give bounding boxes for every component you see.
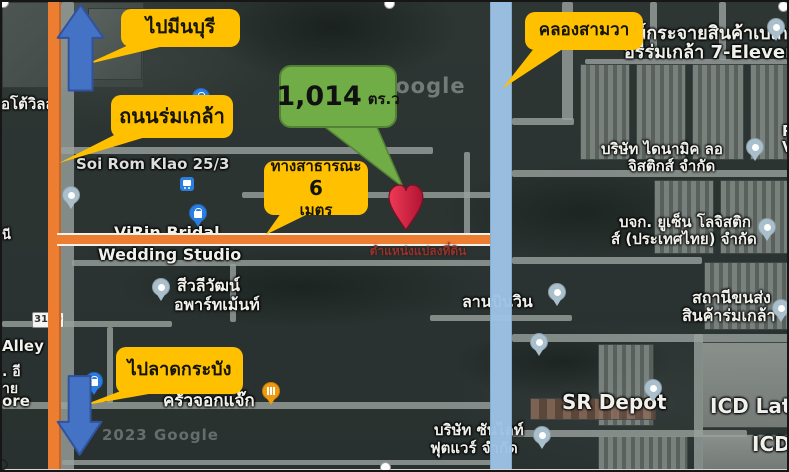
restaurant-pin-icon: [262, 382, 280, 400]
place-pin-icon: [772, 299, 789, 317]
place-pin-icon: [62, 186, 80, 204]
place-pin-icon: [758, 218, 776, 236]
selection-handle[interactable]: [778, 1, 789, 12]
road: [464, 152, 470, 238]
place-pin-icon: [533, 426, 551, 444]
selection-handle[interactable]: [380, 462, 391, 472]
road: [512, 118, 574, 125]
map-label-sivali-2: อพาร์ทเม้นท์: [174, 293, 260, 318]
bus-stop-icon: [180, 177, 194, 191]
place-pin-icon: [548, 283, 566, 301]
road: [512, 334, 789, 342]
plot-position-label: ตำแหน่งแปลงที่ดิน: [350, 242, 486, 261]
callout-public-way: ทางสาธารณะ 6 เมตร: [264, 161, 368, 215]
road: [2, 321, 172, 327]
callout-text: ไปลาดกระบัง: [128, 359, 232, 382]
map-label-station-2: สินค้าร่มเกล้า: [682, 304, 775, 329]
callout-text: ไปมีนบุรี: [146, 16, 215, 40]
shopping-pin-icon: [189, 204, 207, 222]
map-label-fragment-ore: ore: [2, 392, 30, 410]
map-label-icd: ICD: [752, 432, 789, 456]
road: [107, 327, 113, 403]
area-unit: ตร.ว: [368, 90, 400, 109]
place-pin-icon: [152, 278, 170, 296]
callout-rom-klao-road: ถนนร่มเกล้า: [111, 95, 233, 138]
area-value: 1,014: [276, 80, 361, 114]
callout-text: คลองสามวา: [539, 20, 630, 41]
map-label-fragment-ni: นี: [2, 224, 11, 245]
place-pin-icon: [644, 379, 662, 397]
road: [694, 334, 703, 472]
callout-to-min-buri: ไปมีนบุรี: [121, 9, 240, 47]
callout-text: เมตร: [300, 201, 333, 220]
callout-text: ถนนร่มเกล้า: [119, 104, 225, 129]
map-label-fragment-alley: Alley: [2, 337, 44, 355]
callout-to-lat-krabang: ไปลาดกระบัง: [116, 347, 243, 394]
khlong-sam-wa-canal-highlight: [490, 2, 512, 472]
map-label-icd-lat-k: ICD Lat K: [710, 394, 789, 418]
map-label-fragment-v: V: [782, 138, 789, 156]
slide-canvas: Google 2023 Google Soi Rom Klao 25/3 ViR…: [0, 0, 789, 472]
place-pin-icon: [767, 18, 785, 36]
road: [62, 460, 492, 465]
map-label-yusen-2: ส์ (ประเทศไทย) จำกัด: [611, 227, 757, 251]
warehouse-roof: [598, 436, 688, 470]
callout-text: ทางสาธารณะ 6: [264, 157, 368, 201]
place-pin-icon: [746, 138, 764, 156]
callout-area: 1,014 ตร.ว: [279, 65, 397, 128]
map-label-bakery-2: อรี่ร่มเกล้า 7-Eleven: [624, 37, 789, 66]
map-label-auto-vil: ออโต้วิลล: [0, 92, 55, 116]
map-label-dynamic-2: จิสติกส์ จำกัด: [628, 154, 715, 178]
callout-khlong-sam-wa: คลองสามวา: [525, 12, 643, 50]
road: [512, 257, 702, 264]
place-pin-icon: [530, 333, 548, 351]
map-label-wedding-studio: Wedding Studio: [98, 245, 241, 264]
road: [61, 147, 433, 154]
callout-number: 6: [309, 176, 323, 200]
shopping-pin-icon: [85, 372, 103, 390]
google-copyright-watermark: 2023 Google: [102, 426, 219, 444]
map-label-soi-rom-klao: Soi Rom Klao 25/3: [76, 155, 229, 173]
